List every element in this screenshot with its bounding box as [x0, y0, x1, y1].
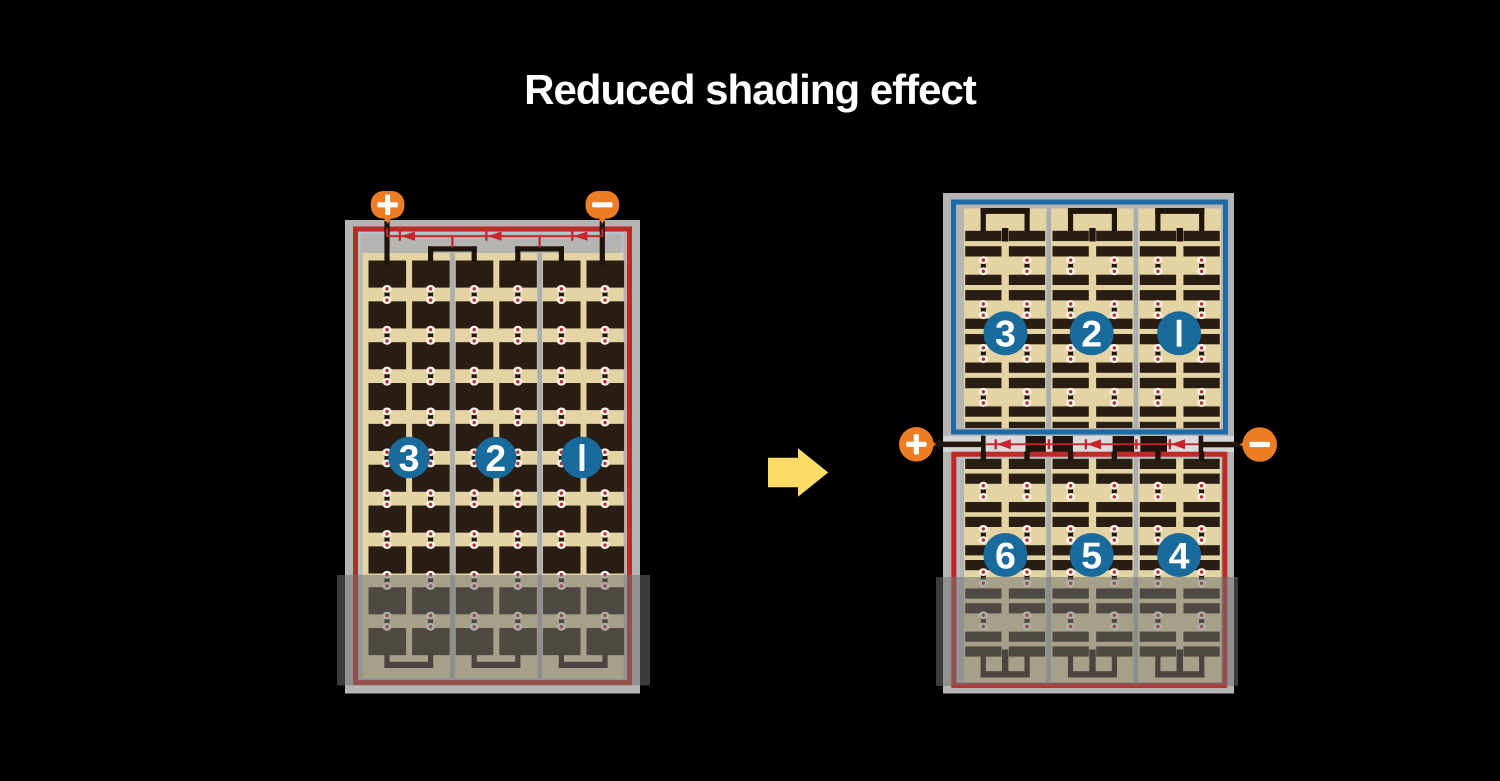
svg-text:3: 3 [995, 313, 1016, 355]
svg-text:2: 2 [485, 437, 506, 479]
svg-text:5: 5 [1081, 534, 1102, 576]
svg-text:3: 3 [399, 437, 420, 479]
svg-text:6: 6 [995, 534, 1016, 576]
svg-text:4: 4 [1169, 534, 1190, 576]
svg-text:Reduced shading effect: Reduced shading effect [524, 66, 977, 113]
svg-text:2: 2 [1081, 313, 1102, 355]
